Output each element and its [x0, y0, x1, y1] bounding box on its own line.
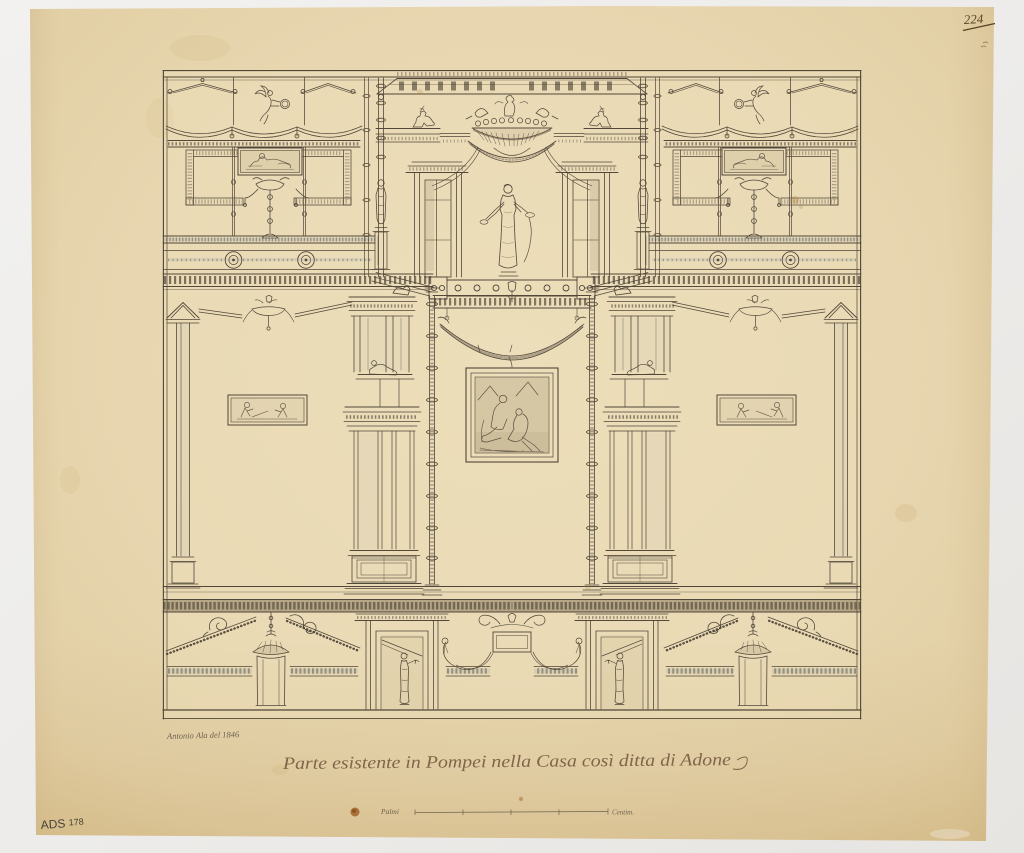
svg-text:Centim.: Centim.: [612, 809, 634, 817]
svg-text:224: 224: [963, 11, 984, 27]
svg-text:Palmi: Palmi: [380, 807, 399, 816]
svg-text:Antonio Ala del 1846: Antonio Ala del 1846: [166, 729, 240, 741]
svg-text:Parte esistente in Pompei nell: Parte esistente in Pompei nella Casa cos…: [282, 749, 732, 773]
